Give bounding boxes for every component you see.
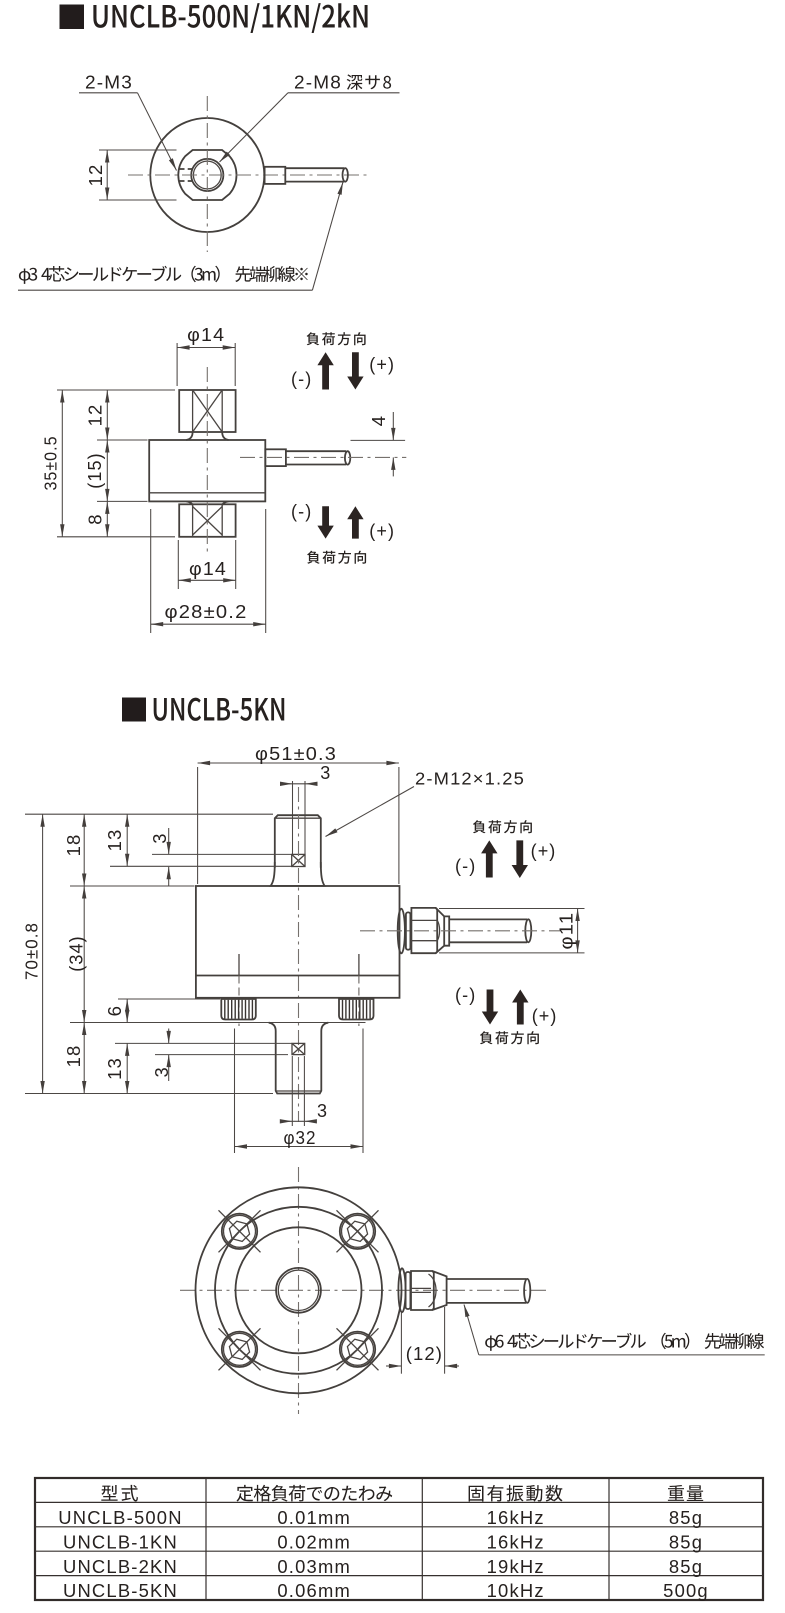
svg-text:(+): (+)	[369, 355, 395, 375]
svg-text:16kHz: 16kHz	[487, 1531, 545, 1552]
svg-text:φ14: φ14	[189, 558, 227, 579]
svg-text:12: 12	[84, 404, 105, 427]
svg-text:φ51±0.3: φ51±0.3	[255, 743, 337, 764]
svg-text:16kHz: 16kHz	[487, 1507, 545, 1528]
svg-text:8: 8	[84, 513, 105, 524]
svg-text:3: 3	[320, 763, 331, 783]
svg-text:85g: 85g	[669, 1556, 703, 1577]
svg-text:2-M12×1.25: 2-M12×1.25	[415, 769, 525, 789]
svg-text:2-M3: 2-M3	[85, 73, 133, 93]
svg-text:3: 3	[317, 1101, 328, 1121]
svg-text:φ14: φ14	[187, 324, 225, 345]
svg-text:(+): (+)	[369, 521, 395, 541]
svg-text:(-): (-)	[291, 502, 312, 522]
svg-text:12: 12	[85, 164, 106, 187]
svg-text:0.01mm: 0.01mm	[277, 1507, 351, 1528]
svg-text:UNCLB-500N: UNCLB-500N	[58, 1507, 182, 1528]
svg-text:0.03mm: 0.03mm	[277, 1556, 351, 1577]
svg-text:φ32: φ32	[284, 1127, 317, 1148]
svg-text:500g: 500g	[663, 1580, 709, 1601]
svg-text:10kHz: 10kHz	[487, 1580, 545, 1601]
svg-text:φ11: φ11	[556, 912, 577, 950]
svg-text:(-): (-)	[455, 985, 476, 1005]
svg-text:(12): (12)	[406, 1343, 443, 1364]
svg-text:UNCLB-2KN: UNCLB-2KN	[63, 1556, 178, 1577]
svg-text:85g: 85g	[669, 1507, 703, 1528]
svg-text:φ28±0.2: φ28±0.2	[165, 601, 248, 622]
svg-text:UNCLB-5KN: UNCLB-5KN	[63, 1580, 178, 1601]
svg-text:13: 13	[104, 829, 125, 852]
svg-text:6: 6	[104, 1005, 125, 1016]
svg-text:4: 4	[368, 415, 389, 426]
svg-text:18: 18	[63, 834, 84, 857]
svg-text:13: 13	[104, 1057, 125, 1080]
svg-text:(34): (34)	[66, 935, 86, 971]
svg-text:3: 3	[152, 1066, 172, 1077]
svg-text:85g: 85g	[669, 1531, 703, 1552]
svg-text:UNCLB-1KN: UNCLB-1KN	[63, 1531, 178, 1552]
svg-text:0.06mm: 0.06mm	[277, 1580, 351, 1601]
svg-text:(-): (-)	[455, 856, 476, 876]
svg-text:18: 18	[63, 1045, 84, 1068]
svg-text:2-M8: 2-M8	[294, 73, 342, 93]
svg-text:19kHz: 19kHz	[487, 1556, 545, 1577]
svg-text:(+): (+)	[532, 1006, 558, 1026]
svg-text:3: 3	[150, 832, 170, 843]
svg-text:70±0.8: 70±0.8	[22, 922, 42, 980]
svg-text:(+): (+)	[531, 841, 557, 861]
svg-text:(-): (-)	[291, 369, 312, 389]
svg-text:35±0.5: 35±0.5	[40, 436, 60, 491]
svg-text:(15): (15)	[85, 452, 105, 488]
svg-text:0.02mm: 0.02mm	[277, 1531, 351, 1552]
